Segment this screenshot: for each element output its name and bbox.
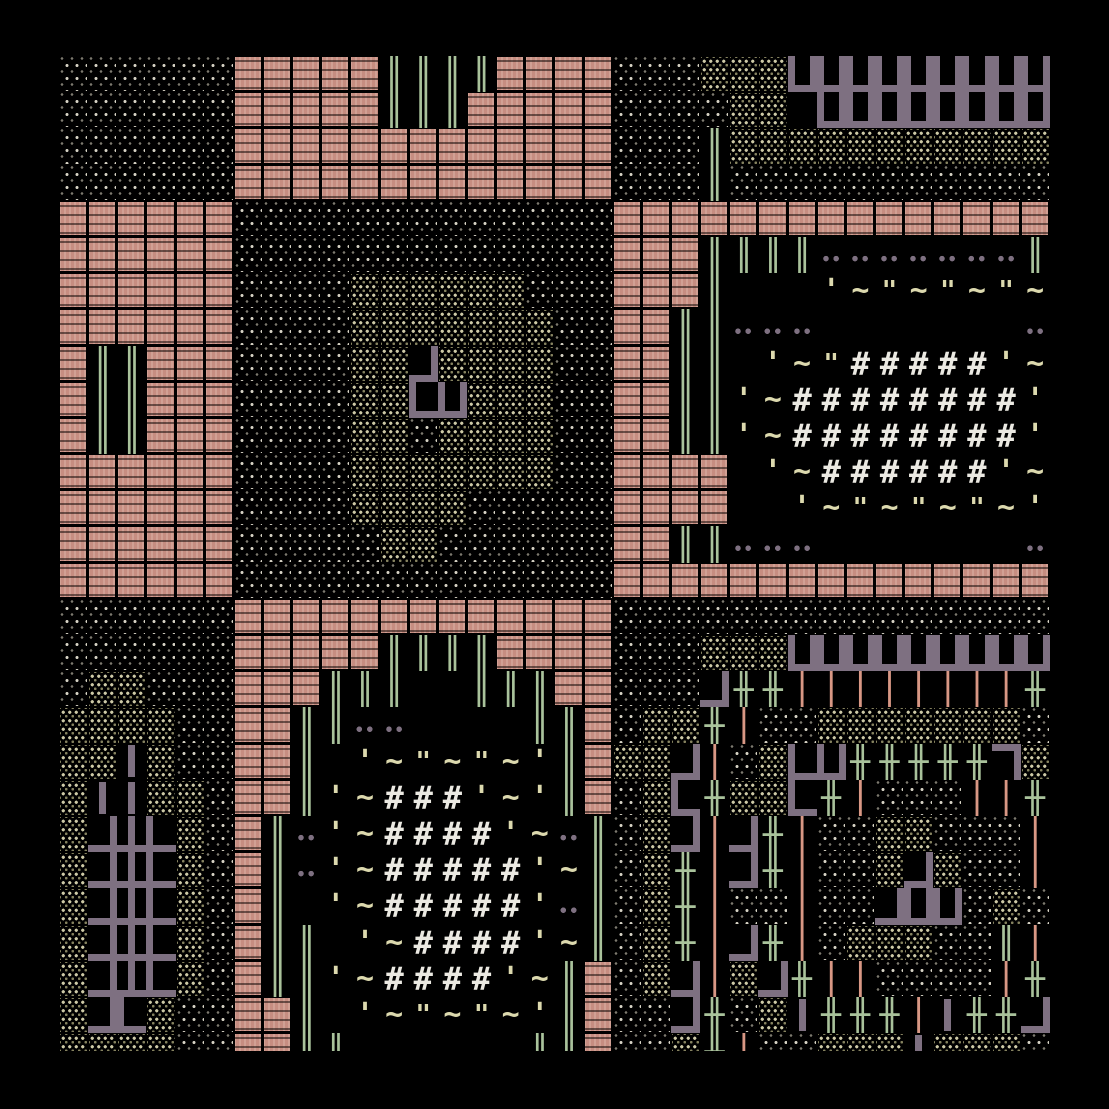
- map-cell: [380, 490, 409, 526]
- map-cell: ║: [758, 237, 787, 273]
- map-cell: ║: [700, 418, 729, 454]
- map-cell: [1021, 128, 1050, 164]
- map-cell: │: [933, 671, 962, 707]
- map-cell: [671, 165, 700, 201]
- map-cell: [321, 201, 350, 237]
- map-cell: [350, 56, 379, 92]
- map-cell: [642, 273, 671, 309]
- map-cell: [758, 744, 787, 780]
- map-cell: [642, 599, 671, 635]
- map-cell: [1021, 888, 1050, 924]
- map-cell: [584, 780, 613, 816]
- map-cell: [554, 671, 583, 707]
- map-cell: [613, 237, 642, 273]
- map-cell: [467, 237, 496, 273]
- map-cell: │: [1021, 925, 1050, 961]
- map-cell: [496, 382, 525, 418]
- map-cell: ~: [758, 418, 787, 454]
- map-cell: [613, 309, 642, 345]
- map-cell: [350, 599, 379, 635]
- map-cell: [729, 888, 758, 924]
- map-cell: [671, 454, 700, 490]
- map-cell: [554, 382, 583, 418]
- map-cell: [642, 997, 671, 1033]
- map-cell: ║: [584, 925, 613, 961]
- map-cell: [933, 1033, 962, 1051]
- map-cell: #: [962, 454, 991, 490]
- map-cell: [263, 382, 292, 418]
- map-cell: #: [438, 961, 467, 997]
- map-cell: [205, 201, 234, 237]
- map-cell: [962, 707, 991, 743]
- map-cell: [613, 1033, 642, 1051]
- map-cell: [263, 56, 292, 92]
- map-cell: [205, 925, 234, 961]
- map-cell: ': [992, 346, 1021, 382]
- map-cell: [321, 382, 350, 418]
- map-cell: [962, 165, 991, 201]
- map-cell: [88, 165, 117, 201]
- map-cell: [613, 346, 642, 382]
- map-cell: │: [962, 671, 991, 707]
- map-cell: [59, 56, 88, 92]
- map-grid[interactable]: ║║║║║║║║║║║║║║║'~"~"~"~║║║║║║'~"#####'~║…: [59, 56, 1050, 1051]
- map-cell: [613, 780, 642, 816]
- map-cell: [263, 490, 292, 526]
- map-cell: [613, 273, 642, 309]
- map-cell: [962, 92, 991, 128]
- map-cell: │: [904, 671, 933, 707]
- map-cell: [117, 780, 146, 816]
- map-cell: │: [788, 925, 817, 961]
- map-cell: ~: [788, 454, 817, 490]
- map-cell: [496, 346, 525, 382]
- map-cell: [992, 237, 1021, 273]
- map-cell: [88, 490, 117, 526]
- map-cell: [700, 490, 729, 526]
- map-cell: [525, 92, 554, 128]
- map-cell: [146, 888, 175, 924]
- map-cell: [846, 165, 875, 201]
- map-cell: [205, 273, 234, 309]
- map-cell: [758, 635, 787, 671]
- map-cell: [117, 273, 146, 309]
- map-cell: [904, 961, 933, 997]
- map-cell: [321, 273, 350, 309]
- map-cell: [496, 128, 525, 164]
- map-cell: ': [321, 852, 350, 888]
- map-cell: [146, 92, 175, 128]
- map-cell: ': [350, 744, 379, 780]
- map-cell: [321, 599, 350, 635]
- map-cell: │: [700, 888, 729, 924]
- map-cell: [59, 490, 88, 526]
- map-cell: [59, 816, 88, 852]
- map-cell: ║: [321, 707, 350, 743]
- map-cell: ~: [438, 744, 467, 780]
- map-cell: [554, 454, 583, 490]
- map-cell: [146, 201, 175, 237]
- map-cell: [292, 635, 321, 671]
- map-cell: [234, 671, 263, 707]
- map-cell: [117, 816, 146, 852]
- map-cell: #: [409, 780, 438, 816]
- map-cell: ║: [292, 744, 321, 780]
- map-cell: [380, 201, 409, 237]
- map-cell: [904, 563, 933, 599]
- map-cell: ║: [263, 925, 292, 961]
- map-cell: [438, 1033, 467, 1051]
- map-cell: [584, 1033, 613, 1051]
- map-cell: [875, 128, 904, 164]
- map-cell: ~: [1021, 273, 1050, 309]
- map-cell: ║: [671, 526, 700, 562]
- map-cell: [263, 237, 292, 273]
- map-cell: [875, 961, 904, 997]
- map-cell: ║: [263, 816, 292, 852]
- map-cell: [758, 490, 787, 526]
- map-cell: ║: [380, 92, 409, 128]
- map-cell: [205, 852, 234, 888]
- map-cell: ║: [671, 346, 700, 382]
- map-cell: [350, 490, 379, 526]
- map-cell: [525, 237, 554, 273]
- map-cell: [992, 563, 1021, 599]
- map-cell: [88, 237, 117, 273]
- map-cell: [817, 128, 846, 164]
- map-cell: [1021, 201, 1050, 237]
- map-cell: [234, 925, 263, 961]
- map-cell: #: [496, 925, 525, 961]
- map-cell: [584, 526, 613, 562]
- map-cell: [525, 490, 554, 526]
- map-cell: [234, 56, 263, 92]
- map-cell: ║: [671, 418, 700, 454]
- map-cell: ║: [88, 346, 117, 382]
- map-cell: [584, 961, 613, 997]
- map-cell: [817, 816, 846, 852]
- map-cell: [292, 346, 321, 382]
- map-cell: [642, 961, 671, 997]
- map-cell: ╫: [1021, 961, 1050, 997]
- map-cell: [992, 1033, 1021, 1051]
- map-cell: ': [496, 816, 525, 852]
- map-cell: [88, 128, 117, 164]
- map-cell: [117, 165, 146, 201]
- map-cell: [234, 961, 263, 997]
- map-cell: [438, 454, 467, 490]
- map-cell: #: [467, 816, 496, 852]
- map-cell: #: [846, 418, 875, 454]
- map-cell: [525, 599, 554, 635]
- map-cell: [554, 563, 583, 599]
- map-cell: [584, 599, 613, 635]
- map-cell: [146, 780, 175, 816]
- map-cell: ~: [554, 925, 583, 961]
- map-cell: [642, 526, 671, 562]
- map-cell: [234, 418, 263, 454]
- map-cell: [788, 309, 817, 345]
- map-cell: ': [525, 852, 554, 888]
- map-cell: [263, 635, 292, 671]
- map-cell: [904, 128, 933, 164]
- map-cell: [700, 671, 729, 707]
- map-cell: [613, 888, 642, 924]
- map-cell: [758, 707, 787, 743]
- map-cell: [1021, 1033, 1050, 1051]
- map-cell: [438, 563, 467, 599]
- map-cell: │: [962, 780, 991, 816]
- map-cell: ║: [292, 707, 321, 743]
- map-cell: ║: [788, 237, 817, 273]
- map-cell: [613, 707, 642, 743]
- map-cell: ║: [700, 346, 729, 382]
- map-cell: [292, 888, 321, 924]
- map-cell: [788, 201, 817, 237]
- map-cell: ~: [350, 961, 379, 997]
- map-cell: ║: [554, 961, 583, 997]
- map-cell: [321, 128, 350, 164]
- map-cell: [176, 273, 205, 309]
- map-cell: [292, 526, 321, 562]
- map-cell: ~: [846, 273, 875, 309]
- map-cell: [817, 309, 846, 345]
- map-cell: [146, 454, 175, 490]
- map-cell: ║: [467, 56, 496, 92]
- map-cell: #: [467, 961, 496, 997]
- map-cell: [992, 635, 1021, 671]
- map-cell: [88, 635, 117, 671]
- map-cell: [671, 997, 700, 1033]
- map-cell: ║: [525, 1033, 554, 1051]
- map-cell: [117, 128, 146, 164]
- map-cell: [554, 92, 583, 128]
- map-cell: [642, 925, 671, 961]
- map-cell: [146, 852, 175, 888]
- map-cell: [642, 816, 671, 852]
- map-cell: [176, 56, 205, 92]
- map-cell: [350, 707, 379, 743]
- map-cell: ": [933, 273, 962, 309]
- map-cell: [700, 563, 729, 599]
- map-cell: [904, 526, 933, 562]
- map-cell: [875, 635, 904, 671]
- map-cell: [88, 997, 117, 1033]
- map-cell: [292, 454, 321, 490]
- map-cell: [613, 563, 642, 599]
- map-cell: [117, 599, 146, 635]
- map-cell: [496, 1033, 525, 1051]
- map-cell: [263, 454, 292, 490]
- map-cell: [234, 780, 263, 816]
- map-cell: [962, 309, 991, 345]
- map-cell: [933, 165, 962, 201]
- map-cell: [525, 165, 554, 201]
- map-cell: [409, 526, 438, 562]
- map-cell: ║: [700, 309, 729, 345]
- map-cell: [117, 997, 146, 1033]
- map-cell: ': [525, 888, 554, 924]
- map-cell: [205, 599, 234, 635]
- map-cell: [380, 346, 409, 382]
- map-cell: [962, 599, 991, 635]
- map-cell: [817, 56, 846, 92]
- map-cell: [321, 997, 350, 1033]
- map-cell: [234, 92, 263, 128]
- map-cell: ║: [496, 671, 525, 707]
- map-cell: [933, 780, 962, 816]
- map-cell: [380, 165, 409, 201]
- map-cell: [992, 56, 1021, 92]
- map-cell: [438, 165, 467, 201]
- map-cell: [525, 309, 554, 345]
- map-cell: [613, 961, 642, 997]
- map-cell: [817, 237, 846, 273]
- map-cell: [933, 128, 962, 164]
- map-cell: ║: [729, 237, 758, 273]
- map-cell: [788, 273, 817, 309]
- map-cell: ": [467, 997, 496, 1033]
- map-cell: [263, 201, 292, 237]
- map-cell: [59, 961, 88, 997]
- map-cell: [933, 237, 962, 273]
- map-cell: [788, 563, 817, 599]
- map-cell: [729, 599, 758, 635]
- map-cell: │: [700, 816, 729, 852]
- map-cell: [671, 56, 700, 92]
- map-cell: [904, 309, 933, 345]
- map-cell: [671, 707, 700, 743]
- map-cell: [933, 56, 962, 92]
- map-cell: [380, 599, 409, 635]
- map-cell: ║: [292, 961, 321, 997]
- map-cell: [584, 273, 613, 309]
- map-cell: [350, 1033, 379, 1051]
- map-cell: ~: [758, 382, 787, 418]
- map-cell: [875, 816, 904, 852]
- map-cell: ╫: [933, 744, 962, 780]
- map-cell: [788, 1033, 817, 1051]
- map-cell: ": [846, 490, 875, 526]
- map-cell: [613, 997, 642, 1033]
- map-cell: [176, 490, 205, 526]
- map-cell: [176, 780, 205, 816]
- map-cell: ║: [671, 382, 700, 418]
- map-cell: [613, 92, 642, 128]
- map-cell: [554, 888, 583, 924]
- map-cell: [817, 201, 846, 237]
- map-cell: [584, 454, 613, 490]
- map-cell: │: [992, 780, 1021, 816]
- map-cell: [117, 490, 146, 526]
- map-cell: ╫: [758, 852, 787, 888]
- map-cell: [729, 490, 758, 526]
- map-cell: [1021, 599, 1050, 635]
- map-cell: ~: [350, 888, 379, 924]
- map-cell: [409, 273, 438, 309]
- map-cell: [496, 56, 525, 92]
- map-cell: ║: [117, 346, 146, 382]
- map-cell: ║: [700, 382, 729, 418]
- map-cell: [467, 418, 496, 454]
- map-cell: [146, 1033, 175, 1051]
- map-cell: [350, 382, 379, 418]
- map-cell: [292, 418, 321, 454]
- map-cell: [758, 888, 787, 924]
- map-cell: ╫: [962, 744, 991, 780]
- map-cell: [176, 165, 205, 201]
- map-cell: [234, 997, 263, 1033]
- map-cell: [321, 165, 350, 201]
- map-cell: [758, 526, 787, 562]
- map-cell: [292, 490, 321, 526]
- map-cell: [321, 635, 350, 671]
- map-cell: [846, 599, 875, 635]
- map-cell: [1021, 563, 1050, 599]
- map-cell: ~: [875, 490, 904, 526]
- map-cell: [350, 635, 379, 671]
- map-cell: [263, 1033, 292, 1051]
- map-cell: [992, 816, 1021, 852]
- map-cell: [700, 92, 729, 128]
- map-cell: [671, 635, 700, 671]
- map-cell: [380, 707, 409, 743]
- map-cell: #: [875, 382, 904, 418]
- map-cell: [88, 563, 117, 599]
- map-cell: [846, 201, 875, 237]
- map-cell: [875, 165, 904, 201]
- map-cell: ": [904, 490, 933, 526]
- map-cell: [846, 563, 875, 599]
- map-cell: [875, 852, 904, 888]
- map-cell: [933, 852, 962, 888]
- map-cell: [59, 454, 88, 490]
- map-cell: [613, 744, 642, 780]
- map-cell: [933, 563, 962, 599]
- map-cell: [525, 56, 554, 92]
- map-cell: [88, 707, 117, 743]
- map-cell: ": [817, 346, 846, 382]
- map-cell: [350, 346, 379, 382]
- map-cell: [933, 961, 962, 997]
- map-cell: [758, 56, 787, 92]
- map-cell: [467, 454, 496, 490]
- map-cell: [642, 128, 671, 164]
- map-cell: [409, 599, 438, 635]
- map-cell: [525, 201, 554, 237]
- map-cell: │: [846, 961, 875, 997]
- map-cell: #: [817, 382, 846, 418]
- map-cell: [117, 852, 146, 888]
- map-cell: [380, 309, 409, 345]
- map-cell: [671, 1033, 700, 1051]
- map-cell: [292, 165, 321, 201]
- map-cell: ╫: [671, 852, 700, 888]
- map-cell: [584, 92, 613, 128]
- map-cell: [205, 490, 234, 526]
- map-cell: [904, 816, 933, 852]
- map-cell: [817, 888, 846, 924]
- map-cell: [292, 273, 321, 309]
- map-cell: [758, 780, 787, 816]
- map-cell: [380, 526, 409, 562]
- map-cell: [88, 309, 117, 345]
- map-cell: [117, 237, 146, 273]
- map-cell: ": [875, 273, 904, 309]
- map-cell: [584, 56, 613, 92]
- map-cell: #: [409, 925, 438, 961]
- map-cell: [146, 418, 175, 454]
